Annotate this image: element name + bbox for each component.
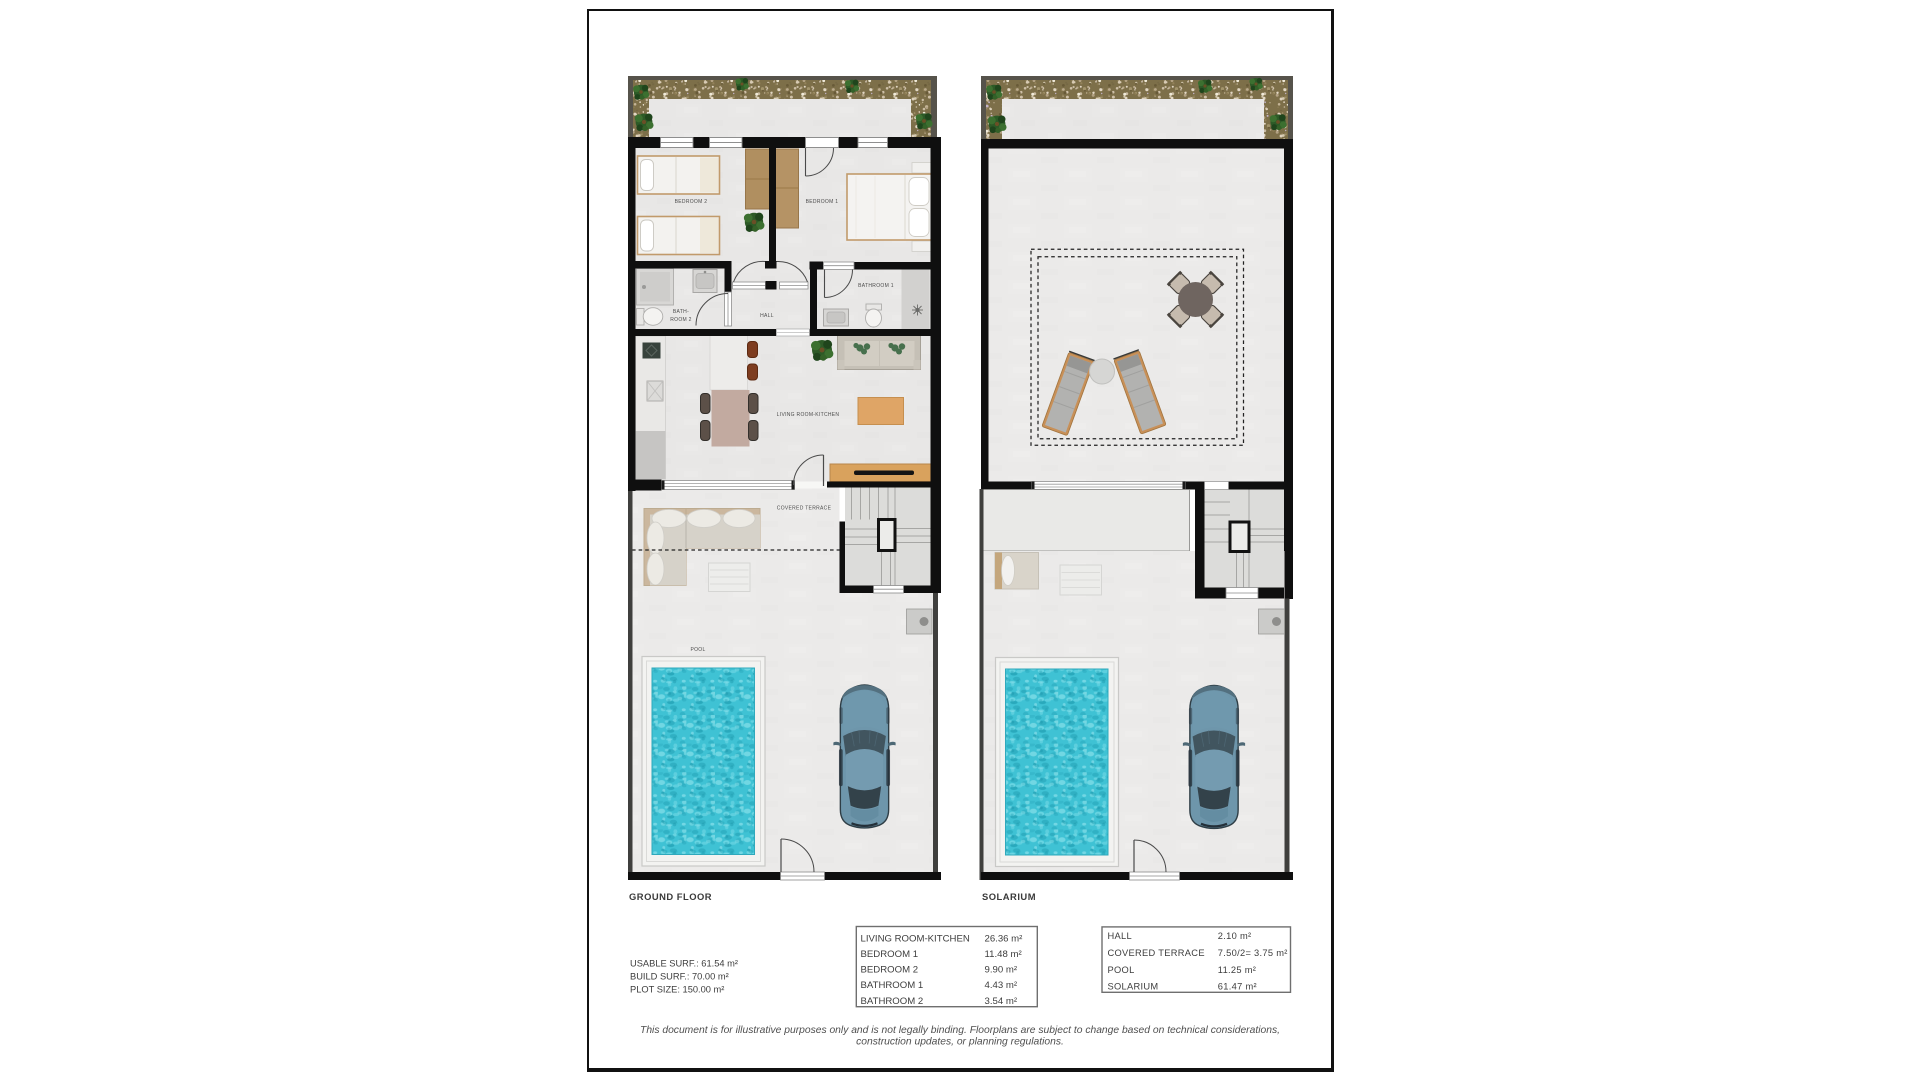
svg-text:POOL: POOL bbox=[1108, 965, 1135, 975]
svg-text:BATHROOM 1: BATHROOM 1 bbox=[861, 980, 924, 991]
svg-text:7.50/2= 3.75 m²: 7.50/2= 3.75 m² bbox=[1218, 948, 1288, 958]
svg-text:11.25 m²: 11.25 m² bbox=[1218, 965, 1256, 975]
svg-text:3.54 m²: 3.54 m² bbox=[985, 996, 1018, 1007]
svg-text:26.36 m²: 26.36 m² bbox=[985, 933, 1024, 944]
svg-text:GROUND FLOOR: GROUND FLOOR bbox=[629, 891, 712, 902]
svg-text:ROOM 2: ROOM 2 bbox=[670, 317, 692, 323]
svg-text:LIVING ROOM-KITCHEN: LIVING ROOM-KITCHEN bbox=[777, 412, 840, 418]
svg-text:4.43 m²: 4.43 m² bbox=[985, 980, 1018, 991]
svg-text:SOLARIUM: SOLARIUM bbox=[982, 891, 1036, 902]
svg-text:2.10 m²: 2.10 m² bbox=[1218, 931, 1252, 941]
svg-text:BATHROOM 1: BATHROOM 1 bbox=[858, 283, 894, 289]
svg-text:BEDROOM 1: BEDROOM 1 bbox=[861, 949, 919, 960]
svg-text:61.47 m²: 61.47 m² bbox=[1218, 982, 1257, 992]
svg-text:BATH-: BATH- bbox=[673, 309, 689, 315]
svg-text:USABLE SURF.: 61.54 m²: USABLE SURF.: 61.54 m² bbox=[630, 959, 738, 969]
svg-text:BEDROOM 1: BEDROOM 1 bbox=[806, 199, 839, 205]
svg-text:This document is for illustrat: This document is for illustrative purpos… bbox=[640, 1025, 1280, 1036]
svg-text:9.90 m²: 9.90 m² bbox=[985, 965, 1018, 976]
svg-text:HALL: HALL bbox=[1108, 931, 1132, 941]
svg-text:SOLARIUM: SOLARIUM bbox=[1108, 982, 1159, 992]
svg-text:LIVING ROOM-KITCHEN: LIVING ROOM-KITCHEN bbox=[861, 933, 970, 944]
svg-text:HALL: HALL bbox=[760, 313, 774, 319]
svg-text:BATHROOM 2: BATHROOM 2 bbox=[861, 996, 924, 1007]
svg-text:construction updates, or plann: construction updates, or planning regula… bbox=[856, 1037, 1064, 1048]
svg-text:COVERED TERRACE: COVERED TERRACE bbox=[777, 506, 832, 512]
svg-text:BUILD SURF.: 70.00 m²: BUILD SURF.: 70.00 m² bbox=[630, 972, 729, 982]
svg-text:PLOT SIZE: 150.00 m²: PLOT SIZE: 150.00 m² bbox=[630, 984, 724, 994]
svg-text:POOL: POOL bbox=[690, 647, 705, 653]
svg-text:BEDROOM 2: BEDROOM 2 bbox=[861, 965, 919, 976]
svg-text:11.48 m²: 11.48 m² bbox=[985, 949, 1023, 960]
svg-text:BEDROOM 2: BEDROOM 2 bbox=[675, 199, 708, 205]
svg-text:COVERED TERRACE: COVERED TERRACE bbox=[1108, 948, 1205, 958]
